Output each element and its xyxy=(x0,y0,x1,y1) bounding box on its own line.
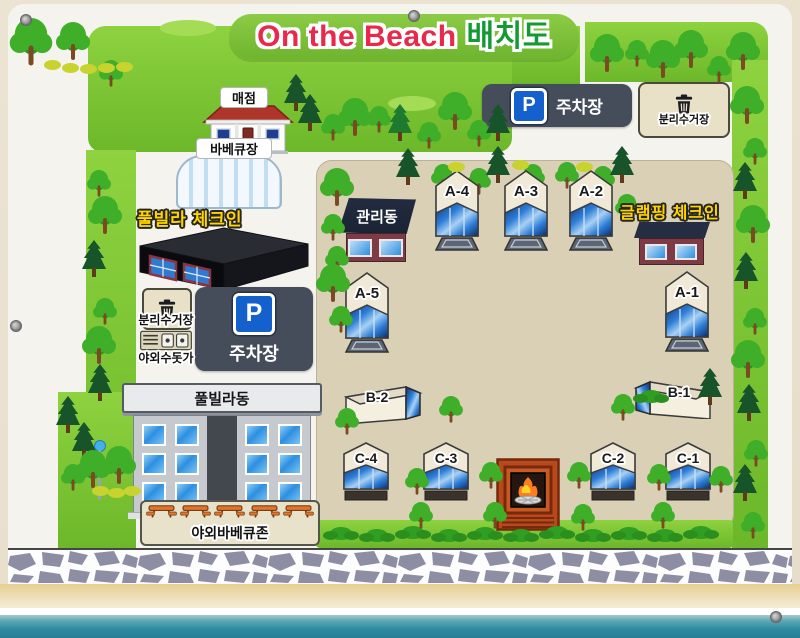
bush-icon xyxy=(640,390,662,403)
bush-icon xyxy=(438,529,460,542)
site-c4-tent: C-4 xyxy=(342,442,390,512)
pine-tree-icon xyxy=(396,148,420,185)
glamping-checkin-building xyxy=(634,222,710,264)
parking-top-label: 주차장 xyxy=(556,93,603,118)
bush-icon xyxy=(80,64,97,74)
site-a2-tent: A-2 xyxy=(568,170,614,254)
tree-icon xyxy=(569,462,590,490)
parking-symbol: P xyxy=(522,94,535,117)
outdoor-sink-label: 야외수돗가 xyxy=(118,352,214,365)
surf-foam xyxy=(0,608,800,615)
pool-villa-checkin-label: 풀빌라 체크인 xyxy=(137,205,243,230)
tree-icon xyxy=(738,205,768,245)
outdoor-bbq-zone: 야외바베큐존 xyxy=(140,500,320,546)
layout-map-sign: On the Beach 배치도 P 주차장 분리수거장 매점 바베큐장 풀빌라… xyxy=(0,0,800,638)
checkin-container-building xyxy=(134,226,314,290)
site-a3-tent: A-3 xyxy=(503,170,549,254)
picnic-bench-icon xyxy=(283,504,314,520)
site-label: A-3 xyxy=(503,183,549,200)
tree-icon xyxy=(676,30,706,70)
stone-path xyxy=(8,548,792,584)
outdoor-bbq-zone-label: 야외바베큐존 xyxy=(142,523,318,543)
store-label: 매점 xyxy=(220,87,268,108)
bush-icon xyxy=(116,62,133,72)
picnic-bench-icon xyxy=(146,504,177,520)
hill xyxy=(160,20,216,36)
site-label: A-2 xyxy=(568,183,614,200)
tree-icon xyxy=(745,308,766,336)
glamping-checkin-label: 글램핑 체크인 xyxy=(620,199,720,223)
site-label: A-1 xyxy=(664,284,710,301)
tree-icon xyxy=(318,264,348,304)
screw-icon xyxy=(10,320,22,332)
site-label: B-2 xyxy=(348,389,406,405)
window xyxy=(245,424,269,446)
pine-tree-icon xyxy=(298,94,322,131)
window xyxy=(142,453,166,475)
stone-pattern xyxy=(8,550,792,584)
bush-icon xyxy=(576,162,593,172)
window xyxy=(278,424,302,446)
bush-icon xyxy=(512,160,529,170)
bbq-hall-building xyxy=(176,155,282,209)
tree-icon xyxy=(627,40,648,68)
tree-icon xyxy=(732,86,762,126)
pool-villa-left-wing xyxy=(134,416,207,512)
tree-icon xyxy=(649,464,670,492)
tree-icon xyxy=(58,22,88,62)
beach-sand xyxy=(0,584,800,608)
parking-icon: P xyxy=(233,293,275,335)
pine-tree-icon xyxy=(733,464,757,501)
tree-icon xyxy=(340,98,370,138)
screw-icon xyxy=(770,611,782,623)
window xyxy=(278,453,302,475)
tree-icon xyxy=(711,466,732,494)
fire-pit-icon xyxy=(496,458,560,532)
bush-icon xyxy=(62,63,79,73)
screw-icon xyxy=(408,10,420,22)
tree-icon xyxy=(419,122,440,150)
tree-icon xyxy=(733,340,763,380)
tree-icon xyxy=(331,306,352,334)
bush-icon xyxy=(510,529,532,542)
bbq-hall-label: 바베큐장 xyxy=(196,138,272,159)
tree-icon xyxy=(648,40,678,80)
parking-left-label: 주차장 xyxy=(229,340,279,366)
admin-building-wall xyxy=(346,233,406,262)
picnic-bench-icon xyxy=(180,504,211,520)
recycling-left-label: 분리수거장 xyxy=(118,314,214,327)
title-korean: 배치도 xyxy=(467,22,551,52)
bush-icon xyxy=(618,527,640,540)
pine-tree-icon xyxy=(88,364,112,401)
sea xyxy=(0,615,800,638)
site-label: A-4 xyxy=(434,183,480,200)
bush-icon xyxy=(108,488,125,498)
pine-tree-icon xyxy=(698,368,722,405)
window xyxy=(348,239,372,257)
pine-tree-icon xyxy=(388,104,412,141)
tree-icon xyxy=(441,396,462,424)
pool-villa-core xyxy=(207,416,237,512)
pool-villa-right-wing xyxy=(237,416,310,512)
pool-villa-roof-sign: 풀빌라동 xyxy=(122,383,322,413)
window xyxy=(675,244,697,260)
window xyxy=(142,424,166,446)
pine-tree-icon xyxy=(733,162,757,199)
site-label: C-4 xyxy=(342,450,390,466)
tree-icon xyxy=(337,408,358,436)
parking-symbol: P xyxy=(246,299,263,328)
picnic-bench-icon xyxy=(249,504,280,520)
tree-icon xyxy=(485,502,506,530)
tree-icon xyxy=(481,462,502,490)
pool-villa-facade xyxy=(133,415,311,513)
bush-icon xyxy=(92,486,109,496)
tree-icon xyxy=(95,298,116,326)
site-a4-tent: A-4 xyxy=(434,170,480,254)
tree-icon xyxy=(709,56,730,84)
bush-icon xyxy=(448,162,465,172)
site-a1-tent: A-1 xyxy=(664,271,710,355)
title-english: On the Beach xyxy=(257,22,456,52)
tree-icon xyxy=(323,214,344,242)
bench-row xyxy=(144,504,316,520)
tree-icon xyxy=(743,512,764,540)
admin-building-label: 관리동 xyxy=(356,206,397,227)
site-c2-tent: C-2 xyxy=(589,442,637,512)
outdoor-sink-icon xyxy=(140,330,192,351)
tree-icon xyxy=(728,32,758,72)
window xyxy=(245,453,269,475)
tree-icon xyxy=(592,34,622,74)
picnic-bench-icon xyxy=(214,504,245,520)
site-label: C-1 xyxy=(664,450,712,466)
pine-tree-icon xyxy=(486,104,510,141)
glamping-building-roof xyxy=(634,222,710,238)
tree-icon xyxy=(440,92,470,132)
pine-tree-icon xyxy=(734,252,758,289)
tree-icon xyxy=(12,18,50,68)
bush-icon xyxy=(124,486,141,496)
site-label: C-3 xyxy=(422,450,470,466)
bush-icon xyxy=(98,63,115,73)
pine-tree-icon xyxy=(82,240,106,277)
trash-icon xyxy=(675,94,693,114)
site-label: A-5 xyxy=(344,285,390,302)
window xyxy=(175,453,199,475)
window xyxy=(379,239,403,257)
recycling-sign-top: 분리수거장 xyxy=(638,82,730,138)
bush-icon xyxy=(546,526,568,539)
tree-icon xyxy=(369,106,390,134)
bush-icon xyxy=(330,527,352,540)
title-banner: On the Beach 배치도 xyxy=(229,14,579,59)
glamping-building-wall xyxy=(639,238,704,265)
screw-icon xyxy=(20,14,32,26)
tree-icon xyxy=(104,446,134,486)
bush-icon xyxy=(654,529,676,542)
parking-icon: P xyxy=(511,88,547,124)
bush-icon xyxy=(366,529,388,542)
window xyxy=(175,424,199,446)
tree-icon xyxy=(653,502,674,530)
recycling-top-label: 분리수거장 xyxy=(659,114,710,126)
tree-icon xyxy=(411,502,432,530)
window xyxy=(645,244,667,260)
tree-icon xyxy=(322,168,352,208)
tree-icon xyxy=(573,504,594,532)
tree-icon xyxy=(89,170,110,198)
tree-icon xyxy=(407,468,428,496)
site-label: C-2 xyxy=(589,450,637,466)
tree-icon xyxy=(90,196,120,236)
bush-icon xyxy=(690,526,712,539)
tree-icon xyxy=(613,394,634,422)
bush-icon xyxy=(44,60,61,70)
tree-icon xyxy=(84,326,114,366)
pine-tree-icon xyxy=(737,384,761,421)
